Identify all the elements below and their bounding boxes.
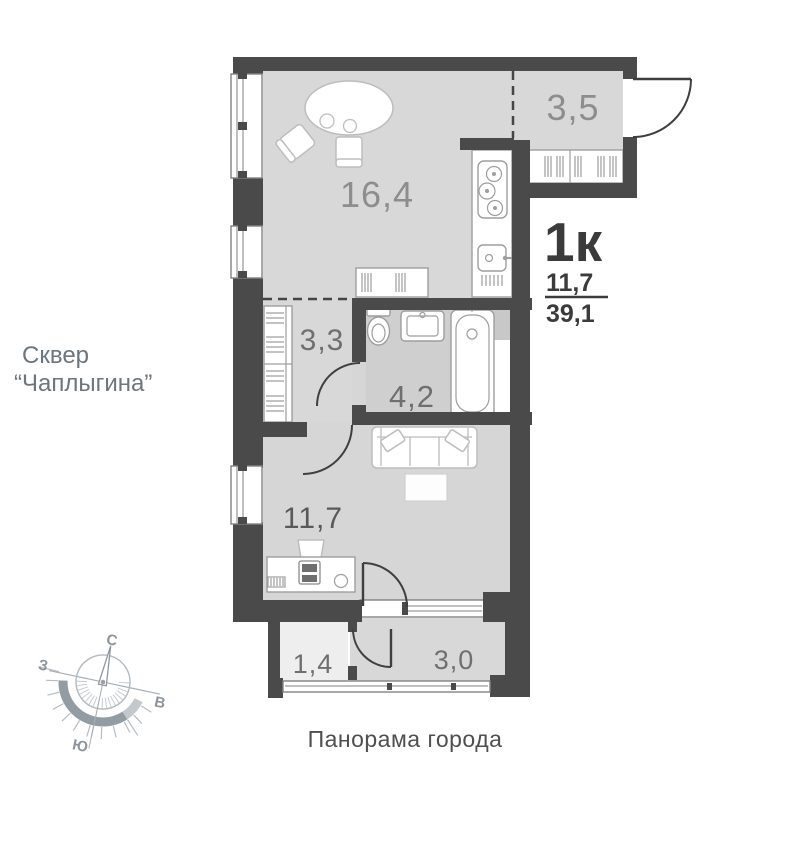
floorplan-page: 16,4 3,5 3,3 4,2 11,7 1,4 3,0 1к 11,7 39… xyxy=(0,0,800,848)
room-area-label-balcony-small: 1,4 xyxy=(293,649,334,679)
sofa xyxy=(372,427,477,468)
desk xyxy=(267,557,355,592)
dining-chair xyxy=(336,137,362,167)
window xyxy=(231,464,262,524)
room-area-label-bedroom: 11,7 xyxy=(283,502,343,535)
room-area-label-corridor: 3,3 xyxy=(300,324,345,357)
compass-east-label: В xyxy=(153,693,167,712)
room-area-label-entry-hall: 3,5 xyxy=(546,87,599,128)
left-note-line2: “Чаплыгина” xyxy=(14,370,152,397)
wall-recess xyxy=(493,340,510,412)
room-area-label-living-kitchen: 16,4 xyxy=(340,174,414,215)
laptop xyxy=(299,561,320,584)
toilet xyxy=(367,308,390,345)
total-area-value: 39,1 xyxy=(546,300,595,328)
room-area-label-balcony: 3,0 xyxy=(434,645,475,675)
entry-wardrobe xyxy=(516,150,623,183)
desk-chair xyxy=(298,540,324,558)
bottom-note: Панорама города xyxy=(308,726,503,752)
entry-door xyxy=(633,79,691,137)
compass-north-label: С xyxy=(105,631,119,650)
floor-balcony xyxy=(350,618,505,682)
compass-west-label: З xyxy=(37,656,50,675)
bathtub xyxy=(451,304,494,417)
sideboard xyxy=(356,268,428,297)
window xyxy=(231,224,262,278)
apartment-summary: 1к 11,7 39,1 xyxy=(544,211,608,328)
kitchen-counter xyxy=(472,150,513,297)
room-area-label-bathroom: 4,2 xyxy=(389,379,435,414)
compass-rose: С З В Ю xyxy=(22,618,178,770)
compass-needle xyxy=(98,645,114,686)
bathroom-door-opening xyxy=(352,362,366,405)
floor-plan-canvas: 16,4 3,5 3,3 4,2 11,7 1,4 3,0 1к 11,7 39… xyxy=(0,0,800,848)
wardrobe xyxy=(264,306,292,422)
window xyxy=(231,72,262,178)
apartment-type-label: 1к xyxy=(544,211,603,273)
sun-rays xyxy=(26,667,155,759)
coffee-table xyxy=(405,474,447,501)
balcony-window xyxy=(283,681,490,692)
living-area-value: 11,7 xyxy=(546,269,593,297)
stove xyxy=(478,161,507,218)
bedroom-balcony-window xyxy=(360,600,484,617)
compass-south-label: Ю xyxy=(71,736,90,756)
left-note-line1: Сквер xyxy=(22,342,89,369)
shaft-niche xyxy=(493,310,510,340)
dining-table xyxy=(305,81,393,135)
